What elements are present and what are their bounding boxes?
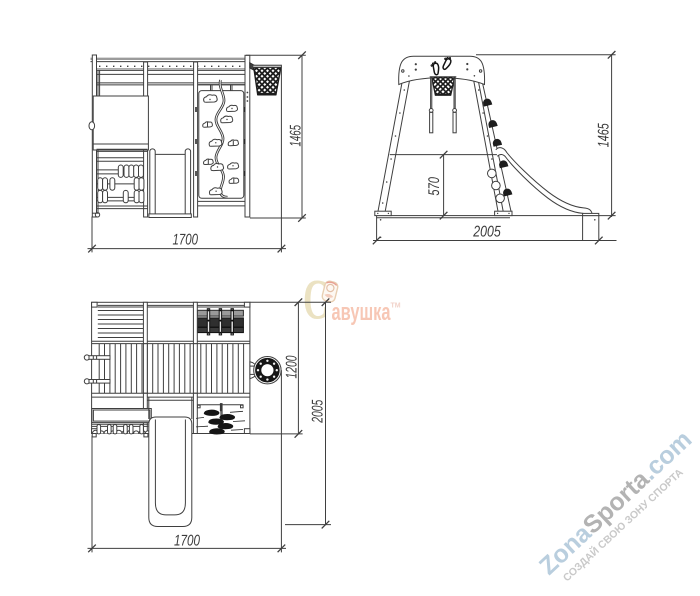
svg-text:1700: 1700 bbox=[173, 231, 199, 248]
svg-text:ZonaSporta.com: ZonaSporta.com bbox=[534, 425, 697, 580]
svg-text:2005: 2005 bbox=[310, 400, 327, 424]
svg-text:ТМ: ТМ bbox=[391, 303, 401, 310]
svg-text:1465: 1465 bbox=[595, 123, 612, 147]
svg-text:2005: 2005 bbox=[472, 224, 501, 241]
svg-text:1200: 1200 bbox=[284, 355, 301, 378]
svg-text:авушка: авушка bbox=[332, 299, 391, 326]
svg-text:570: 570 bbox=[426, 177, 443, 196]
svg-text:1700: 1700 bbox=[174, 532, 200, 549]
svg-text:1465: 1465 bbox=[287, 125, 304, 147]
